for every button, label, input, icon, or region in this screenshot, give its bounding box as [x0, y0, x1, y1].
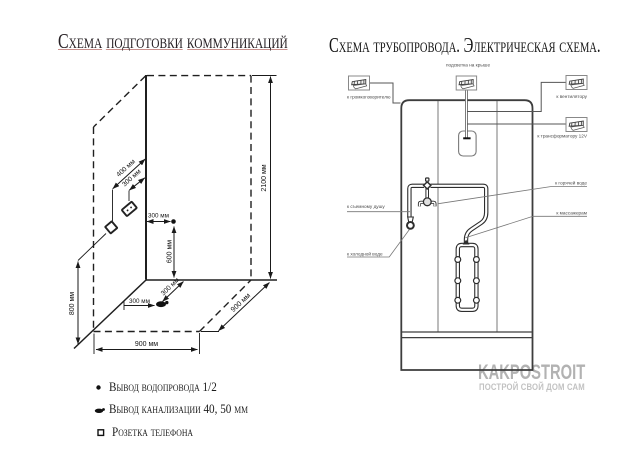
svg-text:к трансформатору 12V: к трансформатору 12V — [537, 134, 588, 139]
svg-text:300 мм: 300 мм — [148, 213, 169, 220]
svg-text:к горячей воде: к горячей воде — [555, 180, 587, 186]
svg-text:к громкоговорителю: к громкоговорителю — [347, 95, 391, 100]
svg-text:к массажерам: к массажерам — [556, 211, 587, 216]
svg-text:600 мм: 600 мм — [167, 240, 174, 263]
svg-text:2100 мм: 2100 мм — [261, 164, 268, 191]
svg-text:900 мм: 900 мм — [135, 341, 158, 348]
svg-text:800 мм: 800 мм — [69, 292, 76, 315]
svg-text:к вентилятору: к вентилятору — [556, 94, 587, 99]
svg-text:300 мм: 300 мм — [129, 298, 150, 305]
svg-text:подсветка на крыше: подсветка на крыше — [446, 63, 491, 68]
svg-text:к съемному душу: к съемному душу — [347, 204, 385, 209]
svg-text:к холодной воде: к холодной воде — [347, 251, 383, 257]
